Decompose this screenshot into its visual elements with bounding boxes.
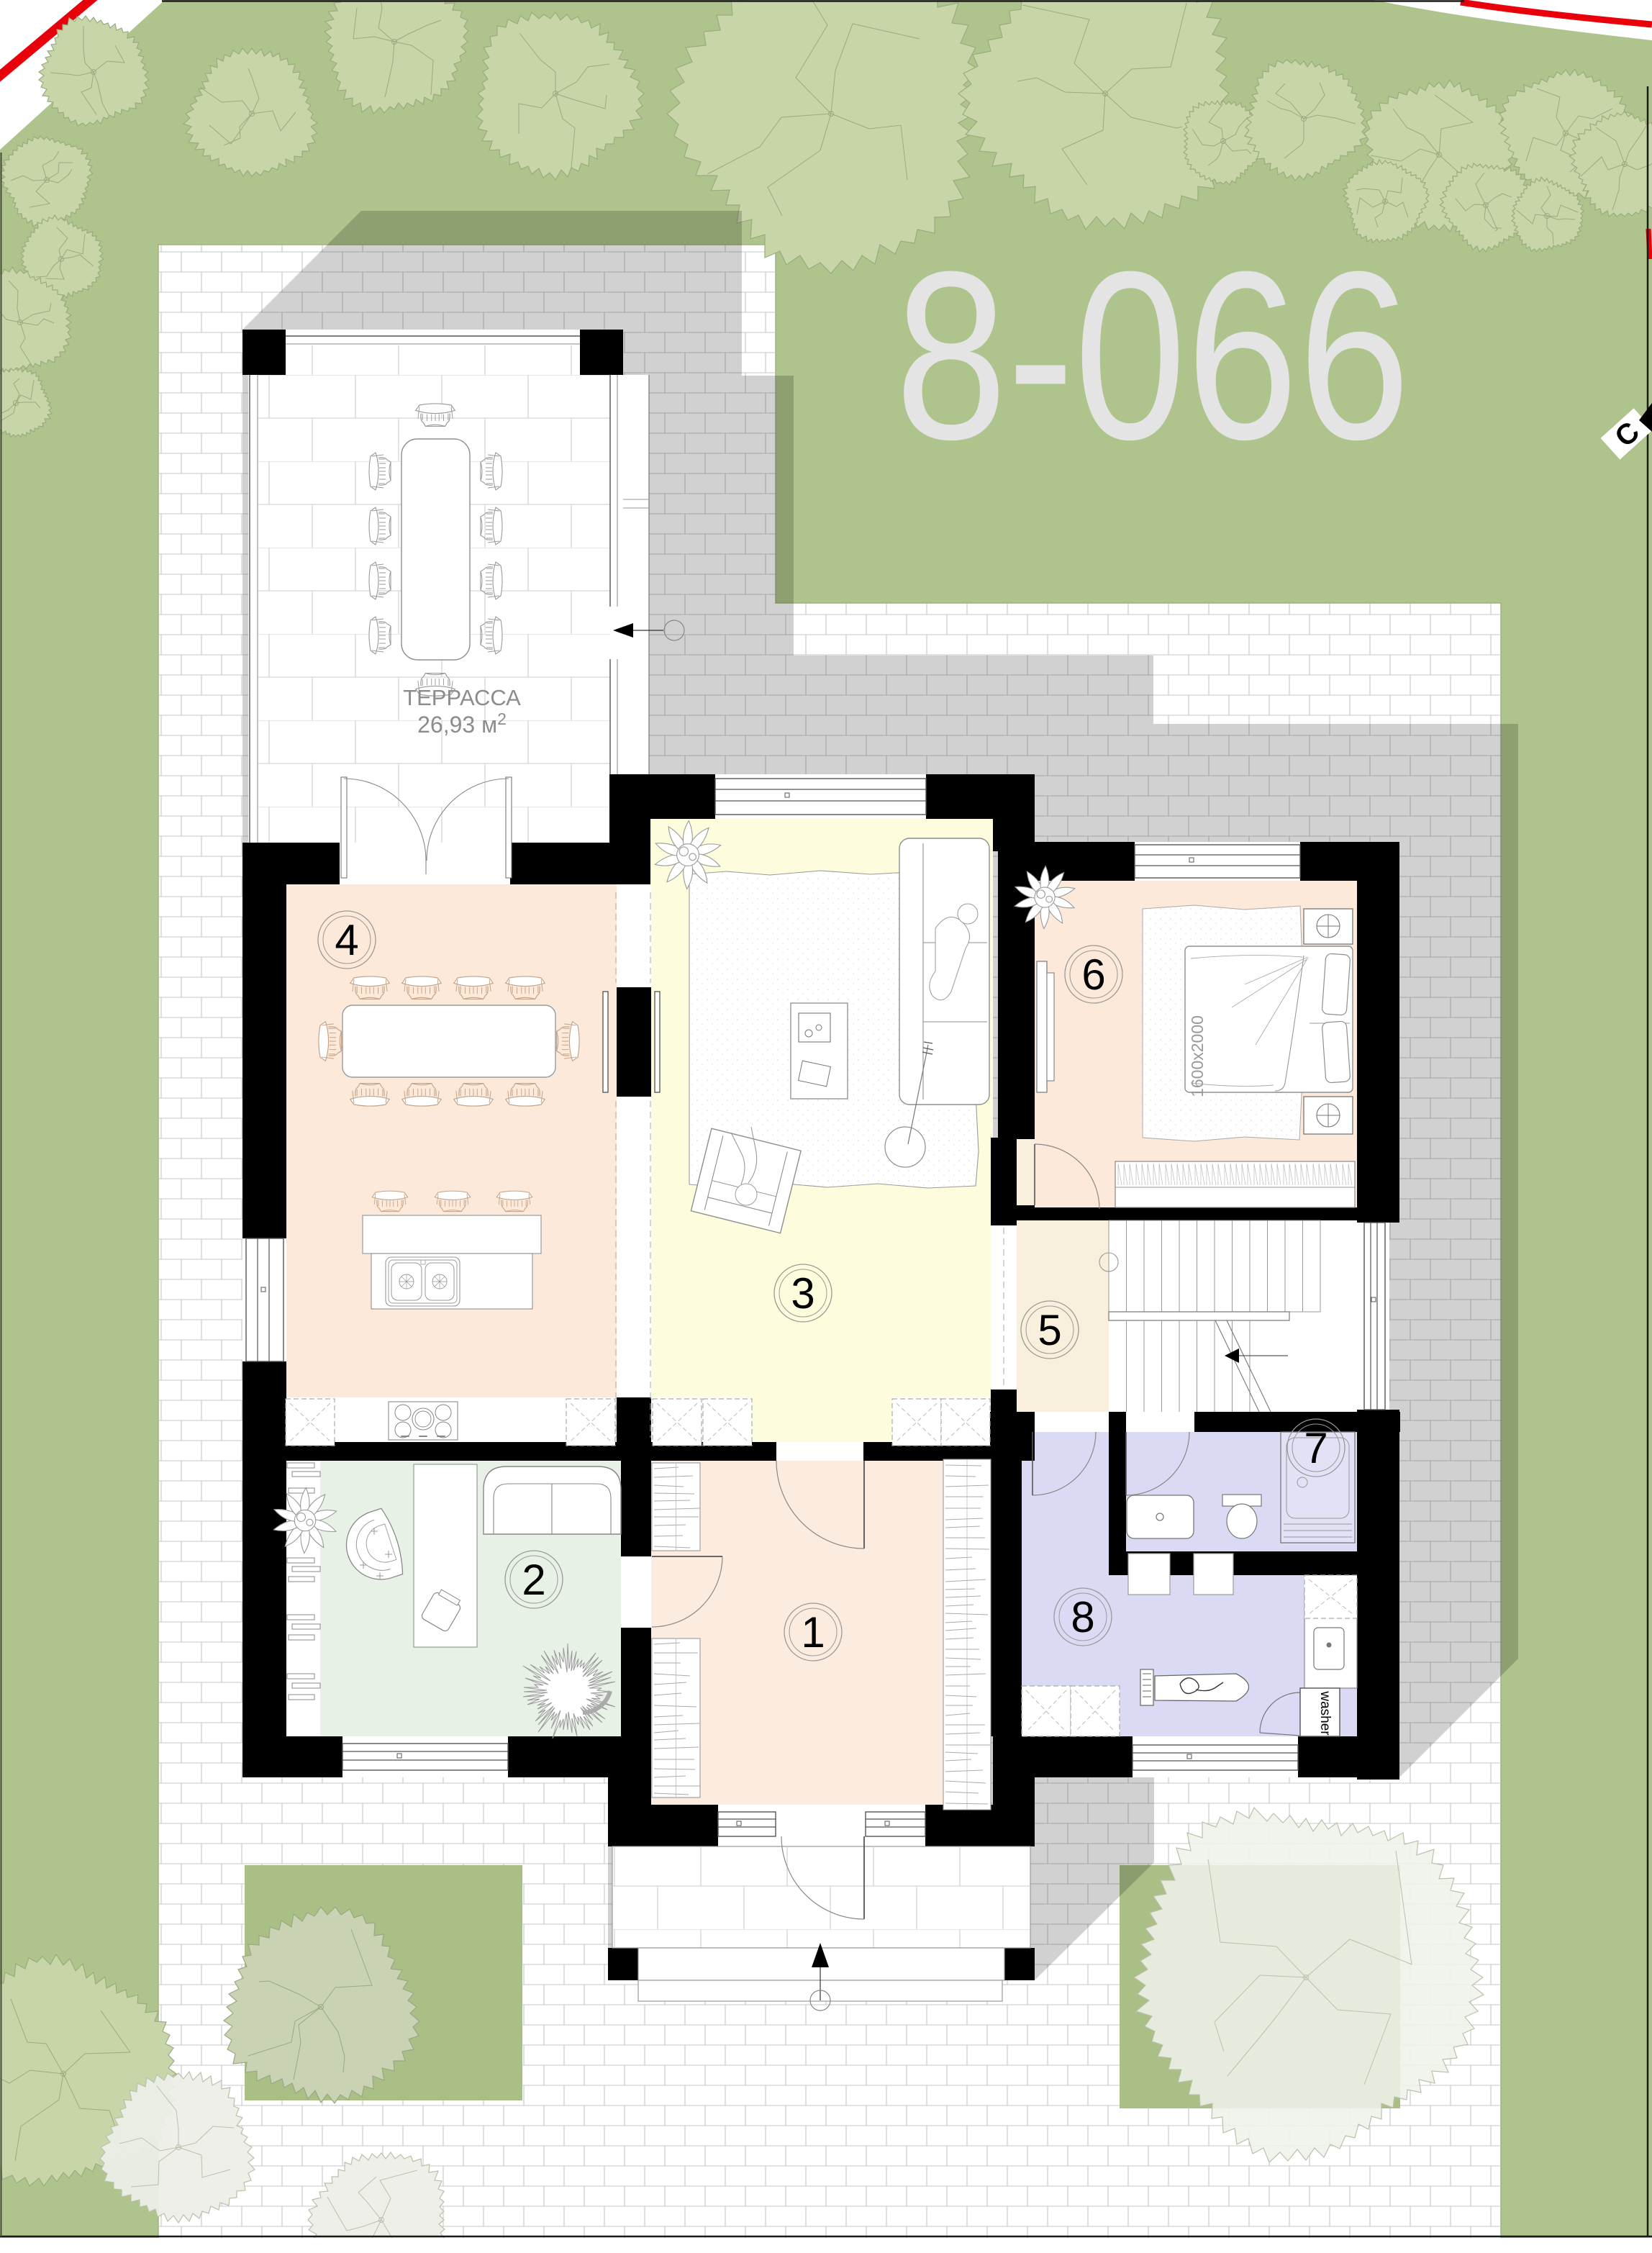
- svg-text:8: 8: [1071, 1593, 1094, 1641]
- svg-text:7: 7: [1304, 1424, 1327, 1472]
- svg-text:2: 2: [522, 1556, 545, 1604]
- svg-text:washer: washer: [1317, 1690, 1333, 1736]
- svg-text:1600x2000: 1600x2000: [1188, 1015, 1207, 1097]
- svg-text:8-066: 8-066: [895, 222, 1410, 489]
- svg-text:ТЕРРАССА: ТЕРРАССА: [403, 685, 521, 710]
- svg-text:26,93 м2: 26,93 м2: [417, 710, 507, 738]
- svg-text:4: 4: [335, 916, 358, 964]
- svg-text:3: 3: [791, 1269, 814, 1318]
- svg-text:5: 5: [1038, 1306, 1061, 1354]
- svg-text:1: 1: [801, 1608, 825, 1656]
- svg-text:6: 6: [1081, 951, 1105, 999]
